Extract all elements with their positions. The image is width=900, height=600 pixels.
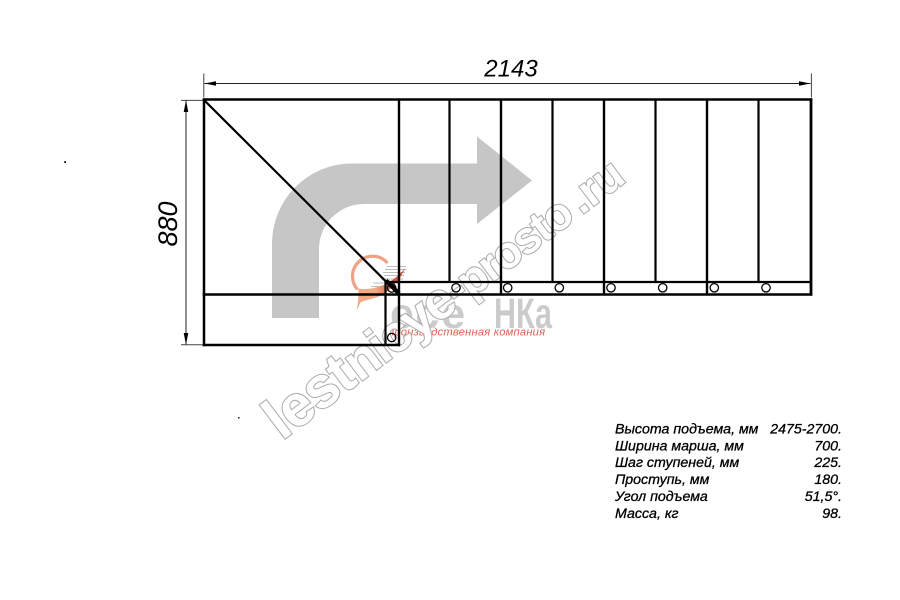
svg-text:Угол подъема: Угол подъема xyxy=(614,489,708,505)
svg-text:Ширина марша, мм: Ширина марша, мм xyxy=(615,438,744,454)
svg-text:Масса, кг: Масса, кг xyxy=(615,506,679,522)
svg-text:98.: 98. xyxy=(822,506,842,522)
svg-text:700.: 700. xyxy=(814,438,842,454)
svg-text:51,5°.: 51,5°. xyxy=(805,489,842,505)
svg-text:Проступь, мм: Проступь, мм xyxy=(615,472,710,488)
svg-text:2143: 2143 xyxy=(483,56,538,83)
svg-text:Высота подъема, мм: Высота подъема, мм xyxy=(615,421,759,437)
svg-text:225.: 225. xyxy=(813,455,842,471)
svg-text:180.: 180. xyxy=(814,472,842,488)
svg-text:2475-2700.: 2475-2700. xyxy=(769,421,842,437)
svg-text:Шаг ступеней, мм: Шаг ступеней, мм xyxy=(615,455,739,471)
svg-text:prosto: prosto xyxy=(446,187,581,307)
svg-text:880: 880 xyxy=(153,201,183,246)
